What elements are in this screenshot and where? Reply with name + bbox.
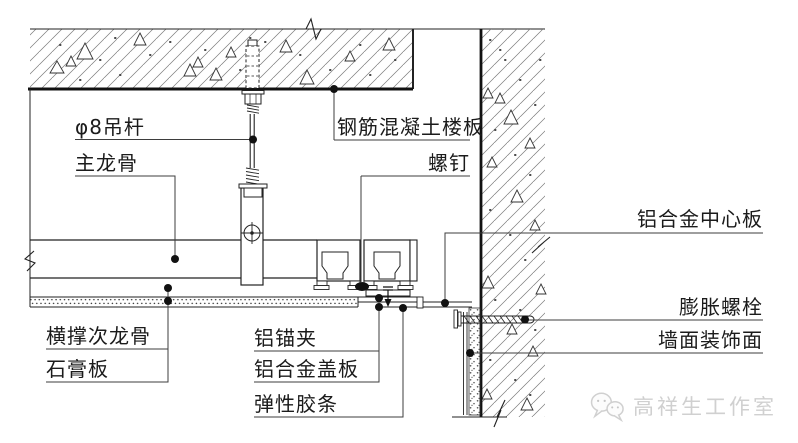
label-elastic-rubber-strip: 弹性胶条 [254, 393, 338, 415]
wall-section [452, 29, 546, 417]
wall-finish-layer [464, 308, 481, 415]
gypsum-board-layer [30, 297, 358, 307]
label-screw: 螺钉 [388, 152, 470, 174]
watermark: 高祥生工作室 [589, 390, 777, 422]
label-wall-finish: 墙面装饰面 [658, 329, 763, 351]
label-concrete-slab: 钢筋混凝土楼板 [337, 116, 484, 138]
label-expansion-bolt: 膨胀螺栓 [679, 296, 763, 318]
label-aluminum-anchor-clip: 铝锚夹 [254, 327, 317, 349]
watermark-text: 高祥生工作室 [633, 391, 777, 421]
label-main-keel: 主龙骨 [75, 152, 138, 174]
aluminum-panel-channels [314, 240, 417, 291]
label-hanger-rod: φ8吊杆 [75, 116, 145, 138]
wechat-logo-icon [589, 390, 627, 422]
label-aluminum-center-panel: 铝合金中心板 [637, 208, 763, 230]
label-aluminum-cover-plate: 铝合金盖板 [254, 358, 359, 380]
drawing-canvas: φ8吊杆 主龙骨 钢筋混凝土楼板 螺钉 铝合金中心板 膨胀螺栓 墙面装饰面 横撑… [0, 0, 798, 443]
label-cross-brace-keel: 横撑次龙骨 [46, 325, 151, 347]
main-keel-hanger [239, 184, 267, 285]
label-gypsum-board: 石膏板 [46, 358, 109, 380]
